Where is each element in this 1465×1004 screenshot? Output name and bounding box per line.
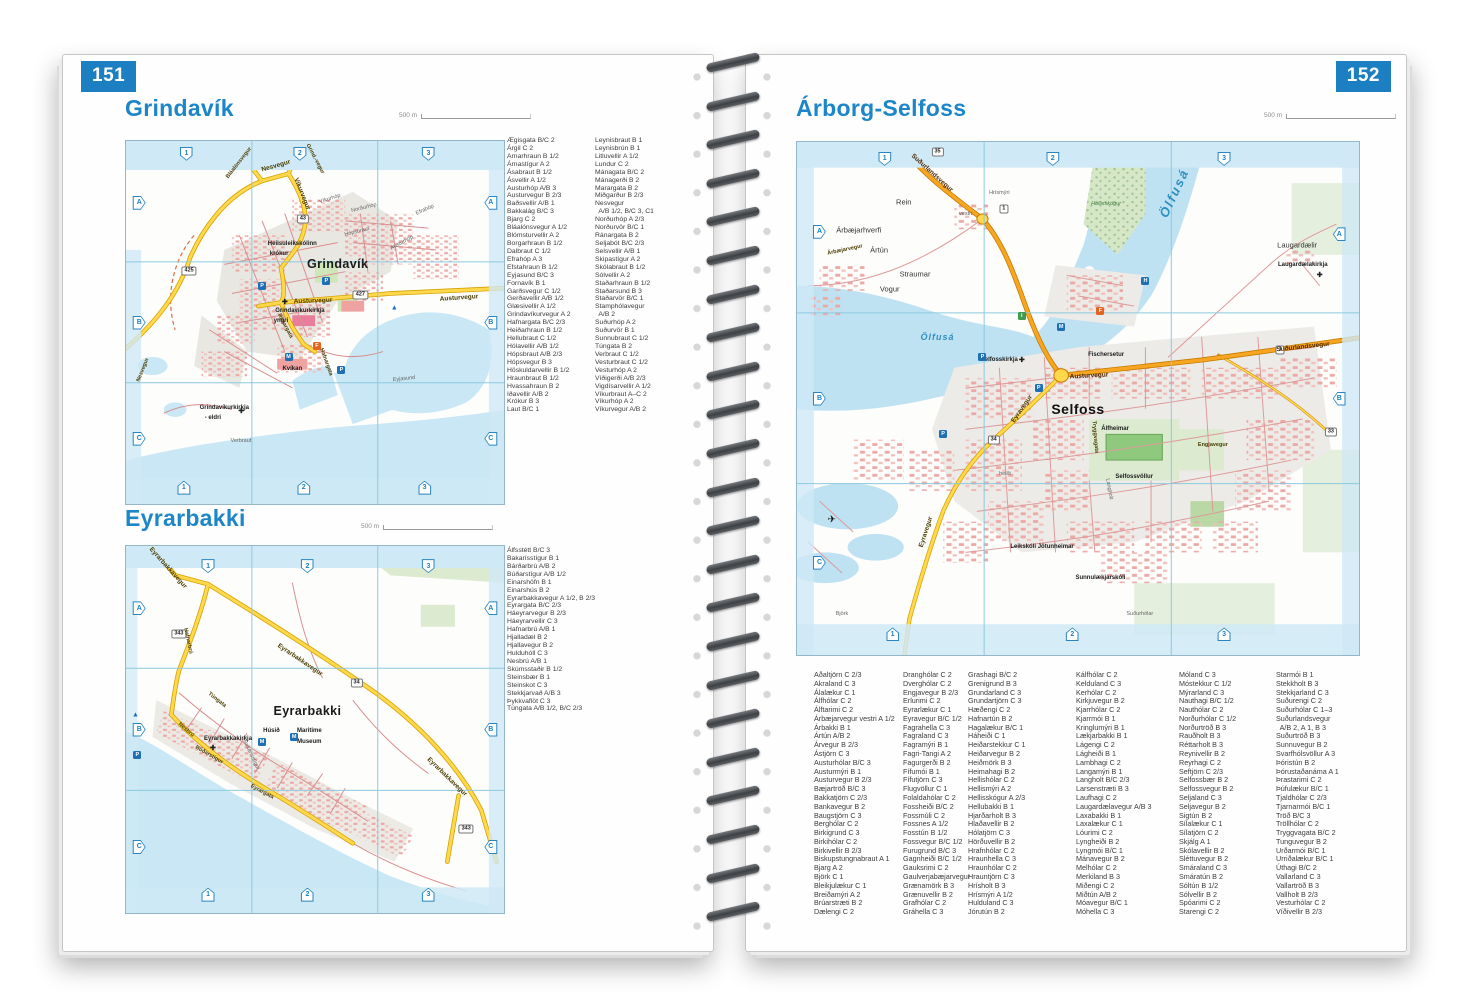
spiral-coil — [706, 824, 761, 845]
info-icon: i — [1018, 312, 1026, 320]
route-badge: 34 — [351, 678, 363, 687]
map-label: Engjavegur — [1198, 442, 1228, 448]
street-index-arborg-col-1: Aðaltjörn C 2/3Akraland C 3Álalækur C 1Á… — [814, 671, 902, 917]
index-entry: Bakarísstígur B 1 — [507, 555, 627, 563]
map-label: Björk — [836, 611, 849, 617]
map-label: Selfossvöllur — [1115, 474, 1153, 480]
church-icon: ✚ — [1317, 271, 1323, 279]
map-label: vestri — [959, 211, 972, 217]
index-entry: Hópsbraut A/B 2/3 — [507, 351, 592, 359]
scale-text: 500 m — [399, 112, 417, 119]
parking-icon: P — [322, 277, 330, 285]
map-title-grindavik: Grindavík — [125, 95, 234, 122]
index-entry: Hvassahraun B 2 — [507, 383, 592, 391]
street-index-grindavik-col-2: Leynisbraut B 1Leynisbrún B 1Litluvellir… — [595, 137, 680, 414]
index-entry: Hjalladæl B 2 — [507, 634, 627, 642]
atlas-book: 151 Grindavík 500 m — [0, 0, 1465, 1004]
church-icon: ✚ — [282, 298, 288, 306]
river-label: Ölfusá — [920, 332, 954, 342]
index-entry: Gráhella C 3 — [903, 908, 967, 917]
street-index-grindavik-col-1: Ægisgata B/C 2Árgil C 2Arnarhraun B 1/2Á… — [507, 137, 592, 414]
map-label: Fischersetur — [1088, 352, 1124, 358]
museum-icon: M — [258, 738, 266, 746]
index-entry: Verbraut C 1/2 — [595, 351, 680, 359]
index-entry: Efrahóp A 3 — [507, 256, 592, 264]
route-badge: 427 — [353, 291, 368, 300]
index-entry: Grindavíkurvegur A 2 — [507, 311, 592, 319]
map-title-eyrarbakki: Eyrarbakki — [125, 505, 246, 532]
index-entry: Leynisbraut B 1 — [595, 137, 680, 145]
page-151: 151 Grindavík 500 m — [62, 54, 714, 952]
index-entry: Ásvellir A 1/2 — [507, 177, 592, 185]
map-label: Grindavíkurkirkja — [275, 308, 324, 314]
index-entry: Mánagerði B 2 — [595, 177, 680, 185]
index-entry: Vesturbraut C 1/2 — [595, 359, 680, 367]
map-title-arborg-selfoss: Árborg-Selfoss — [796, 95, 966, 122]
binding-holes-right — [760, 58, 774, 946]
airfield-icon: ✈ — [828, 515, 836, 526]
map-label: krókur — [270, 251, 289, 257]
index-entry: Litluvellir A 1/2 — [595, 153, 680, 161]
street-index-eyrarbakki: Álfsstétt B/C 3Bakarísstígur B 1Bárðarbr… — [507, 547, 627, 713]
index-entry: Árgil C 2 — [507, 145, 592, 153]
index-entry: Staðarvör B/C 1 — [595, 295, 680, 303]
route-badge: 425 — [182, 266, 197, 275]
index-entry: Hraunbraut B 1/2 — [507, 375, 592, 383]
index-entry: Stekkjarvað A/B 3 — [507, 690, 627, 698]
spiral-coil — [706, 361, 761, 382]
index-entry: Sunnubraut C 1/2 — [595, 335, 680, 343]
index-entry: Ránargata B 2 — [595, 232, 680, 240]
index-entry: Eyrargata B/C 2/3 — [507, 602, 627, 610]
index-entry: Hafnargata B/C 2/3 — [507, 319, 592, 327]
town-label: Grindavík — [307, 257, 368, 271]
route-badge: 34 — [988, 435, 1000, 444]
index-entry: Baðsvellir A/B 1 — [507, 200, 592, 208]
map-label: Hrísmýri — [989, 190, 1009, 196]
parking-icon: P — [133, 751, 141, 759]
index-entry: Steinsbær B 1 — [507, 674, 627, 682]
parking-icon: P — [1035, 384, 1043, 392]
street-index-arborg-col-5: Móland C 3Móstekkur C 1/2Mýrarland C 3Na… — [1179, 671, 1275, 917]
index-entry: Víðivellir B 2/3 — [1276, 908, 1366, 917]
route-badge: 1 — [999, 204, 1008, 213]
spiral-coil — [706, 477, 761, 498]
map-arborg-selfoss: 123123ABCAB35134133ÖlfusáÖlfusáSelfossÁr… — [796, 141, 1360, 656]
campsite-icon: ▲ — [391, 304, 398, 311]
map-label: Maritime — [297, 728, 322, 734]
index-entry: Eyrarbakkavegur A 1/2, B 2/3 — [507, 595, 627, 603]
fuel-icon: F — [313, 342, 321, 350]
index-entry: Háeyrarvegur B 2/3 — [507, 610, 627, 618]
parking-icon: P — [258, 282, 266, 290]
parking-icon: P — [337, 366, 345, 374]
map-label: Húsið — [263, 728, 280, 734]
index-entry: Efstahraun B 1/2 — [507, 264, 592, 272]
index-entry: Seljabót B/C 2/3 — [595, 240, 680, 248]
map-label: Laugardælakirkja — [1278, 262, 1328, 268]
map-label: Sunnulækjarskóli — [1075, 575, 1125, 581]
index-entry: Hulduhóll C 3 — [507, 650, 627, 658]
church-icon: ✚ — [210, 744, 216, 752]
index-entry: Móhella C 3 — [1076, 908, 1178, 917]
index-entry: Ásabraut B 1/2 — [507, 169, 592, 177]
index-entry: Norðurvör B/C 1 — [595, 224, 680, 232]
index-entry: Sólvellir A 2 — [595, 272, 680, 280]
map-grindavik: 123123ABCABC42543427GrindavíkHeilsuleiks… — [125, 140, 505, 505]
spiral-coil — [706, 901, 761, 922]
spiral-coil — [706, 554, 761, 575]
spiral-coil — [706, 631, 761, 652]
spiral-coil — [706, 91, 761, 112]
index-entry: Eyjasund B/C 3 — [507, 272, 592, 280]
map-label: - eldri — [205, 415, 221, 421]
town-label: Eyrarbakki — [273, 704, 341, 718]
index-entry: Steinskot C 3 — [507, 682, 627, 690]
index-entry: Staðarhraun B 1/2 — [595, 280, 680, 288]
parking-icon: P — [978, 353, 986, 361]
index-entry: Norðurhóp A 2/3 — [595, 216, 680, 224]
index-entry: Hellubraut C 1/2 — [507, 335, 592, 343]
map-label: Straumar — [900, 269, 931, 278]
street-index-arborg-col-6: Starmói B 1Stekkholt B 3Stekkjarland C 3… — [1276, 671, 1366, 917]
map-label: Leikskóli Jötunheimar — [1010, 544, 1073, 550]
map-label: Museum — [297, 739, 321, 745]
index-entry: Bjarg C 2 — [507, 216, 592, 224]
index-entry: Leynisbrún B 1 — [595, 145, 680, 153]
index-entry: Dælengi C 2 — [814, 908, 902, 917]
index-entry: Dalbraut C 1/2 — [507, 248, 592, 256]
map-label: Laugardælir — [1277, 240, 1317, 249]
index-entry: Vesturhóp A 2 — [595, 367, 680, 375]
index-entry: Arnarhraun B 1/2 — [507, 153, 592, 161]
index-entry: Heiðarhraun B 1/2 — [507, 327, 592, 335]
index-entry: Hólavellir A/B 1/2 — [507, 343, 592, 351]
scale-text: 500 m — [361, 523, 379, 530]
spiral-coil — [706, 438, 761, 459]
index-entry: Bakkalág B/C 3 — [507, 208, 592, 216]
spiral-coil — [706, 708, 761, 729]
map-label: heiði — [999, 471, 1011, 477]
route-badge: 33 — [1325, 427, 1337, 436]
street-index-arborg-col-2: Dranghólar C 2Dverghólar C 2Engjavegur B… — [903, 671, 967, 917]
index-entry: Túngata B 2 — [595, 343, 680, 351]
index-entry: Laut B/C 1 — [507, 406, 592, 414]
route-badge: 43 — [297, 215, 309, 224]
index-entry: Höskuldarvellir B 1/2 — [507, 367, 592, 375]
index-entry: Vigdísarvellir A 1/2 — [595, 383, 680, 391]
spiral-coil — [706, 245, 761, 266]
map-label: Verbraut — [231, 438, 252, 444]
spiral-coil — [706, 129, 761, 150]
index-entry: Bláalónsvegur A 1/2 — [507, 224, 592, 232]
index-entry: Skólabraut B 1/2 — [595, 264, 680, 272]
index-entry: Fornavík B 1 — [507, 280, 592, 288]
spiral-coil — [706, 399, 761, 420]
index-entry: Árnastígur A 2 — [507, 161, 592, 169]
museum-icon: M — [290, 733, 298, 741]
index-entry: Mánagata B/C 2 — [595, 169, 680, 177]
church-icon: ✚ — [1019, 356, 1025, 364]
index-entry: Álfsstétt B/C 3 — [507, 547, 627, 555]
index-entry: Einarshús B 2 — [507, 587, 627, 595]
index-entry: Lundur C 2 — [595, 161, 680, 169]
route-badge: 343 — [459, 824, 474, 833]
scale-line — [421, 114, 531, 119]
museum-icon: M — [285, 353, 293, 361]
scale-bar: 500 m — [1264, 112, 1396, 119]
index-entry: Jórutún B 2 — [968, 908, 1075, 917]
index-entry: Hópsvegur B 3 — [507, 359, 592, 367]
street-index-arborg-col-4: Kálfhólar C 2Kelduland C 3Kerhólar C 2Ki… — [1076, 671, 1178, 917]
map-label: Hellisskógur — [1091, 201, 1121, 207]
index-entry: Hafnarbrú A/B 1 — [507, 626, 627, 634]
index-entry: Gerðavellir A/B 1/2 — [507, 295, 592, 303]
index-entry: Miðgarður B 2/3 — [595, 192, 680, 200]
scale-bar: 500 m — [399, 112, 531, 119]
page-number: 151 — [81, 61, 136, 92]
map-label: Heilsuleikskólinn — [268, 241, 317, 247]
map-label: Árbæjarhverfi — [836, 226, 881, 235]
spiral-coil — [706, 785, 761, 806]
index-entry: Þykkvaflöt C 3 — [507, 698, 627, 706]
index-entry: Stamphólavegur — [595, 303, 680, 311]
index-entry: Selsvellir A/B 1 — [595, 248, 680, 256]
index-entry: Borgarhraun B 1/2 — [507, 240, 592, 248]
index-entry: Búðarstígur A/B 1/2 — [507, 571, 627, 579]
spiral-coil — [706, 515, 761, 536]
map-eyrarbakki: 123123ABCABC34334343EyrarbakkiHúsiðMarit… — [125, 545, 505, 914]
scale-bar: 500 m — [361, 523, 493, 530]
spiral-coil — [706, 670, 761, 691]
church-icon: ✚ — [238, 407, 244, 415]
index-entry: Túngata A/B 1/2, B/C 2/3 — [507, 705, 627, 713]
page-number: 152 — [1336, 61, 1391, 92]
spiral-coil — [706, 747, 761, 768]
index-entry: Blómsturvellir A 2 — [507, 232, 592, 240]
index-entry: Starengi C 2 — [1179, 908, 1275, 917]
index-entry: Austurhóp A/B 3 — [507, 185, 592, 193]
map-label: Rein — [896, 198, 911, 207]
street-index-arborg-col-3: Grashagi B/C 2Grenigrund B 3Grundarland … — [968, 671, 1075, 917]
index-entry: Skúmsstaðir B 1/2 — [507, 666, 627, 674]
spiral-coil — [706, 284, 761, 305]
parking-icon: P — [939, 430, 947, 438]
index-entry: Suðurhóp A 2 — [595, 319, 680, 327]
map-grindavik-graphics — [126, 141, 504, 504]
index-entry: Suðurvör B 1 — [595, 327, 680, 335]
spiral-coil — [706, 592, 761, 613]
spiral-coil — [706, 322, 761, 343]
scale-text: 500 m — [1264, 112, 1282, 119]
binding-holes-left — [690, 58, 704, 946]
index-entry: Hjallavegur B 2 — [507, 642, 627, 650]
index-entry: Víðigerði A/B 2/3 — [595, 375, 680, 383]
map-label: Ártún — [870, 245, 888, 254]
index-entry: Nesvegur — [595, 200, 680, 208]
index-entry: Háeyrarvellir C 3 — [507, 618, 627, 626]
page-152: 152 Árborg-Selfoss 500 m — [745, 54, 1407, 952]
route-badge: 35 — [931, 148, 943, 157]
index-entry: Víkurbraut A–C 2 — [595, 391, 680, 399]
map-label: Álfheimar — [1101, 426, 1129, 432]
map-label: Kvíkan — [282, 366, 302, 372]
index-entry: Krókur B 3 — [507, 398, 592, 406]
fuel-icon: F — [1096, 307, 1104, 315]
index-entry: Nesbrú A/B 1 — [507, 658, 627, 666]
index-entry: Víkurhóp A 2 — [595, 398, 680, 406]
spiral-coil — [706, 863, 761, 884]
map-label: Vogur — [880, 285, 900, 294]
index-entry: Glæsivellir A 1/2 — [507, 303, 592, 311]
town-label: Selfoss — [1051, 401, 1104, 417]
scale-line — [1286, 114, 1396, 119]
index-entry: Iðavellir A/B 2 — [507, 391, 592, 399]
index-entry: A/B 2 — [595, 311, 680, 319]
scale-line — [383, 525, 493, 530]
spiral-binding — [704, 58, 762, 946]
index-entry: Bárðarbrú A/B 2 — [507, 563, 627, 571]
museum-icon: M — [1057, 323, 1065, 331]
index-entry: Einarshöfn B 1 — [507, 579, 627, 587]
index-entry: Víkurvegur A/B 2 — [595, 406, 680, 414]
index-entry: Ægisgata B/C 2 — [507, 137, 592, 145]
spiral-coil — [706, 168, 761, 189]
hospital-icon: H — [1141, 277, 1149, 285]
spiral-coil — [706, 206, 761, 227]
map-label: Suðurhólar — [1126, 611, 1153, 617]
index-entry: Skipastígur A 2 — [595, 256, 680, 264]
campsite-icon: ▲ — [132, 711, 139, 718]
